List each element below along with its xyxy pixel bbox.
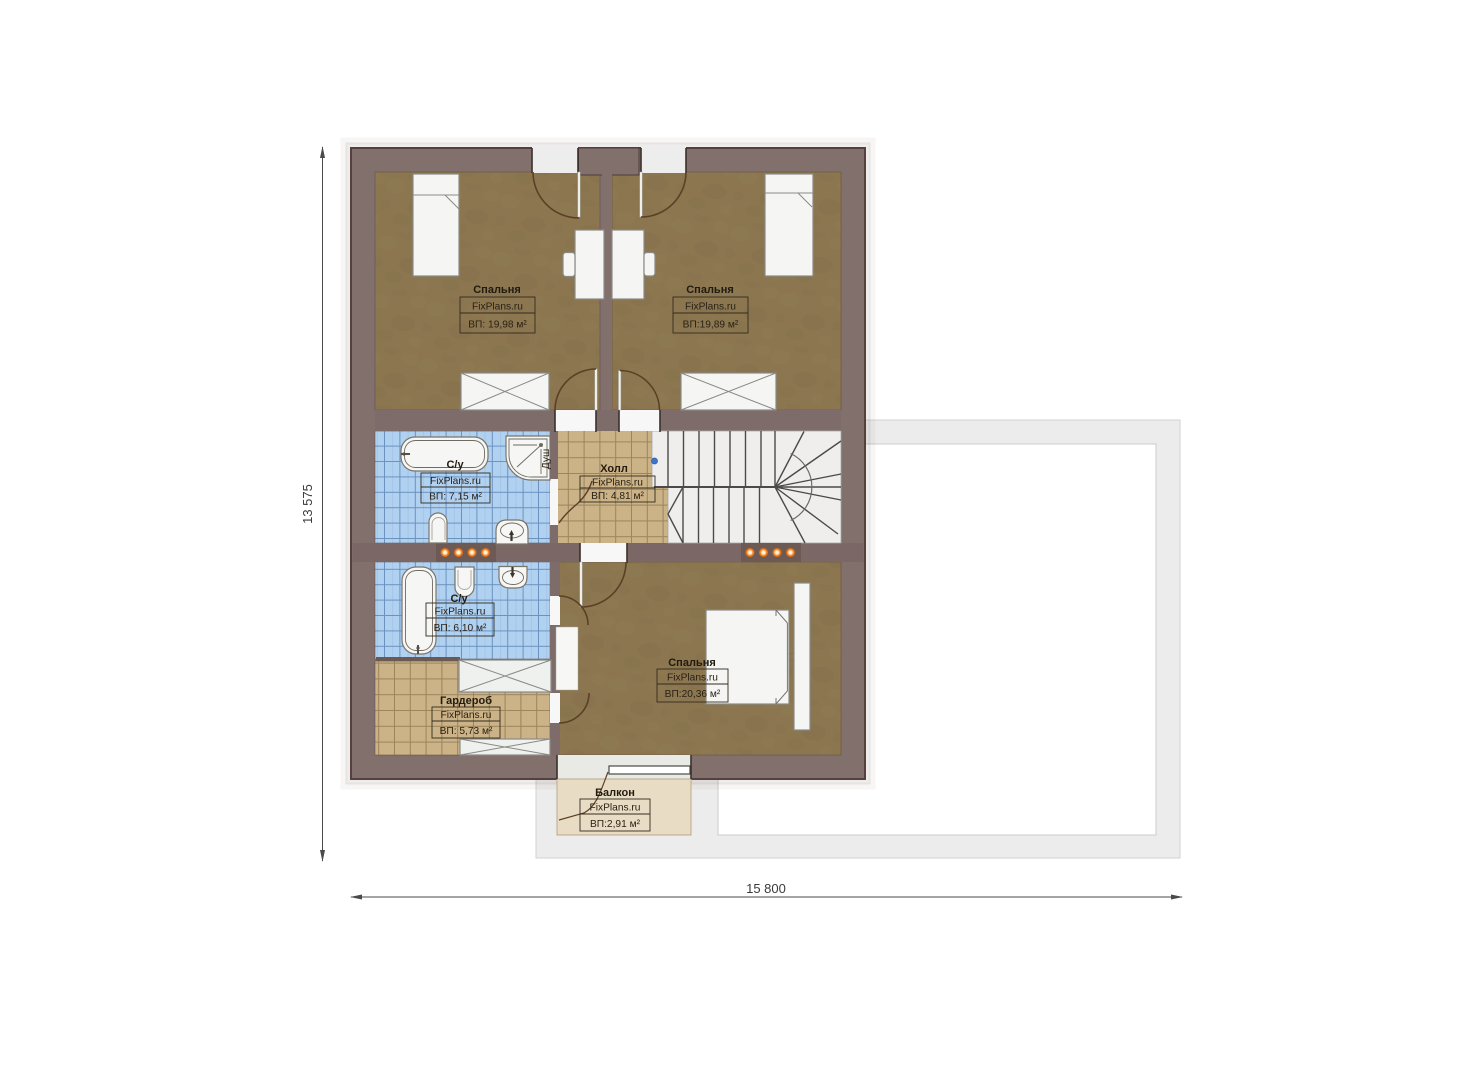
svg-text:FixPlans.ru: FixPlans.ru: [590, 803, 641, 814]
svg-text:Гардероб: Гардероб: [440, 695, 492, 707]
svg-text:FixPlans.ru: FixPlans.ru: [435, 607, 486, 618]
svg-text:15 800: 15 800: [746, 881, 786, 896]
svg-text:ВП: 6,10 м²: ВП: 6,10 м²: [434, 623, 487, 634]
svg-text:Душ: Душ: [541, 449, 552, 469]
svg-text:FixPlans.ru: FixPlans.ru: [472, 302, 523, 313]
svg-text:ВП:2,91 м²: ВП:2,91 м²: [590, 819, 641, 830]
svg-text:FixPlans.ru: FixPlans.ru: [441, 710, 492, 721]
svg-text:Балкон: Балкон: [595, 787, 635, 799]
svg-text:ВП: 7,15 м²: ВП: 7,15 м²: [429, 492, 482, 503]
svg-text:Спальня: Спальня: [686, 284, 734, 296]
svg-text:ВП:19,89 м²: ВП:19,89 м²: [683, 320, 739, 331]
svg-text:ВП: 19,98 м²: ВП: 19,98 м²: [468, 320, 527, 331]
svg-text:FixPlans.ru: FixPlans.ru: [430, 476, 481, 487]
svg-text:С/у: С/у: [446, 459, 464, 471]
svg-text:FixPlans.ru: FixPlans.ru: [592, 478, 643, 489]
svg-text:ВП: 5,73 м²: ВП: 5,73 м²: [440, 726, 493, 737]
svg-text:Спальня: Спальня: [668, 657, 716, 669]
svg-text:Спальня: Спальня: [473, 284, 521, 296]
svg-text:13 575: 13 575: [300, 484, 315, 524]
svg-text:FixPlans.ru: FixPlans.ru: [667, 673, 718, 684]
svg-text:FixPlans.ru: FixPlans.ru: [685, 302, 736, 313]
svg-text:ВП: 4,81 м²: ВП: 4,81 м²: [591, 491, 644, 502]
svg-text:ВП:20,36 м²: ВП:20,36 м²: [665, 689, 721, 700]
svg-text:Холл: Холл: [600, 463, 628, 475]
